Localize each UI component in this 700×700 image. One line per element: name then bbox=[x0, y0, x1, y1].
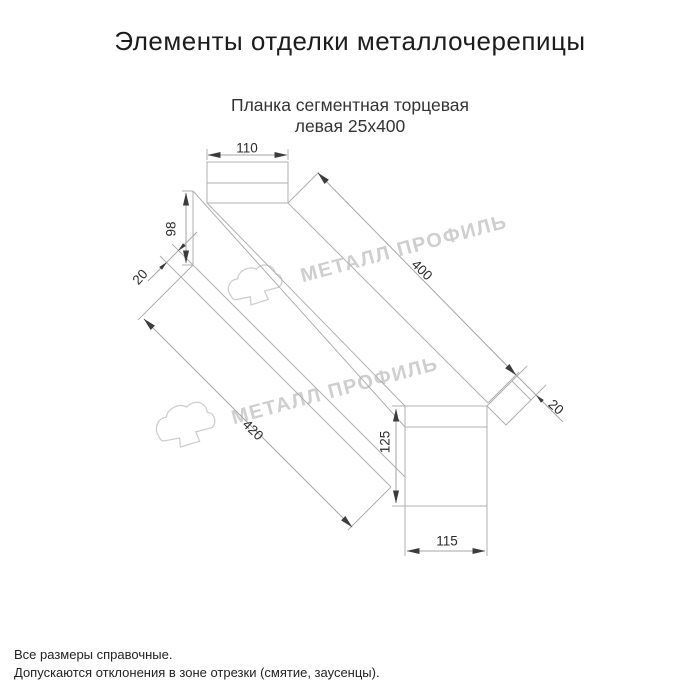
dim-label-left-fold: 20 bbox=[129, 266, 150, 287]
technical-drawing: МЕТАЛЛ ПРОФИЛЬ МЕТАЛЛ ПРОФИЛЬ bbox=[0, 0, 700, 700]
watermark-text: МЕТАЛЛ ПРОФИЛЬ bbox=[229, 353, 441, 429]
footer-notes: Все размеры справочные. Допускаются откл… bbox=[14, 646, 380, 681]
dim-label-right-height: 125 bbox=[378, 431, 393, 454]
watermark-text: МЕТАЛЛ ПРОФИЛЬ bbox=[298, 211, 510, 287]
watermark-1: МЕТАЛЛ ПРОФИЛЬ bbox=[225, 211, 510, 309]
cloud-logo-icon bbox=[225, 262, 285, 308]
extension-lines bbox=[138, 149, 546, 556]
footer-note-line1: Все размеры справочные. bbox=[14, 646, 380, 664]
dim-label-top-width: 110 bbox=[236, 141, 258, 156]
dim-label-top-length: 400 bbox=[409, 257, 436, 283]
watermark-2: МЕТАЛЛ ПРОФИЛЬ bbox=[153, 353, 441, 451]
footer-note-line2: Допускаются отклонения в зоне отрезки (с… bbox=[14, 664, 380, 682]
dimension-labels: 110 98 20 400 20 420 125 115 bbox=[129, 141, 566, 549]
dim-label-right-fold: 20 bbox=[545, 396, 566, 417]
dim-label-right-width: 115 bbox=[436, 534, 458, 549]
cloud-logo-icon bbox=[153, 399, 219, 451]
dim-label-left-height: 98 bbox=[164, 221, 179, 236]
